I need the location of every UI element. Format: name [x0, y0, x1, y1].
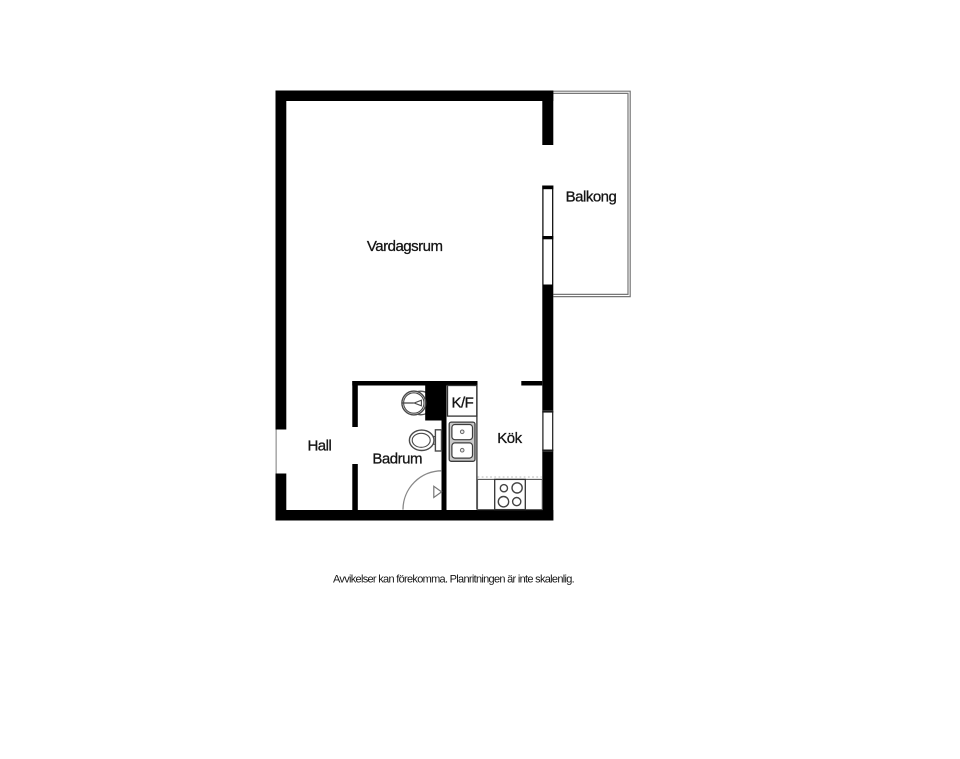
svg-text:Kök: Kök: [497, 430, 522, 447]
svg-text:Badrum: Badrum: [372, 451, 422, 468]
svg-text:Vardagsrum: Vardagsrum: [367, 238, 443, 255]
svg-text:K/F: K/F: [451, 394, 473, 411]
svg-text:Avvikelser kan förekomma. Plan: Avvikelser kan förekomma. Planritningen …: [333, 574, 575, 586]
svg-text:Hall: Hall: [307, 437, 331, 454]
svg-text:Balkong: Balkong: [566, 188, 617, 205]
